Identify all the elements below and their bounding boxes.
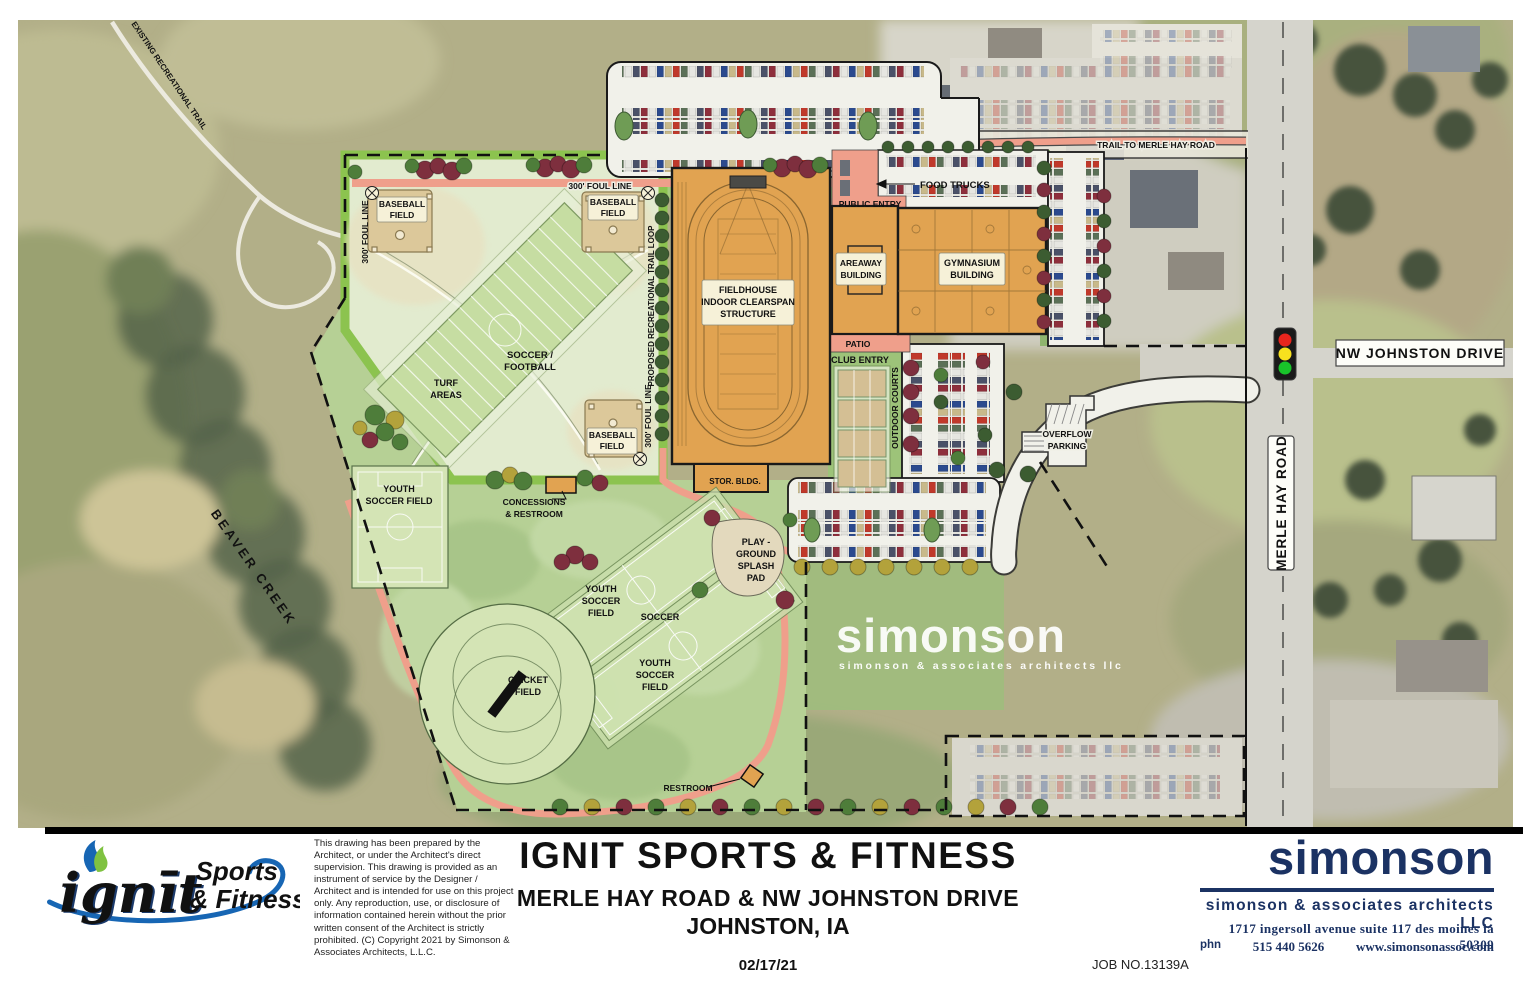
label-baseball-2: FIELD <box>601 208 626 218</box>
label-youth-soccer-low: YOUTH <box>639 658 671 668</box>
label-overflow-parking: OVERFLOW <box>1042 429 1092 439</box>
cricket-field <box>419 604 595 784</box>
watermark-firm: simonson & associates architects llc <box>839 660 1124 672</box>
label-proposed-trail-loop: PROPOSED RECREATIONAL TRAIL LOOP <box>647 225 656 387</box>
merle-hay-road-sign: MERLE HAY ROAD <box>1268 435 1294 571</box>
label-playground: PLAY - <box>742 537 771 547</box>
label-trail-to-merle-hay: TRAIL TO MERLE HAY ROAD <box>1097 140 1215 150</box>
drawing-date: 02/17/21 <box>0 957 1536 974</box>
simonson-contact-line: phn 515 440 5626 www.simonsonassoc.com <box>1200 939 1494 955</box>
label-baseball-2: BASEBALL <box>590 197 636 207</box>
merle-hay-road-pavement <box>1247 20 1313 828</box>
compass-icon <box>366 187 379 200</box>
label-turf-areas: AREAS <box>430 390 462 400</box>
label-playground: PAD <box>747 573 766 583</box>
label-areaway: AREAWAY <box>840 258 883 268</box>
compass-icon <box>642 187 655 200</box>
drawing-sheet: 300' FOUL LINE 300' FOUL LINE 300' FOUL … <box>0 0 1536 994</box>
label-youth-soccer-mid: FIELD <box>588 608 614 618</box>
job-number: JOB NO.13139A <box>1092 957 1189 972</box>
signal-green-light <box>1279 362 1292 375</box>
label-foul-line-bottom: 300' FOUL LINE <box>643 384 653 448</box>
traffic-signal-icon <box>1274 328 1296 380</box>
label-soccer-football: SOCCER / <box>507 350 553 361</box>
watermark-wordmark: simonson <box>836 609 1066 662</box>
label-youth-soccer-mid: YOUTH <box>585 584 617 594</box>
simonson-wordmark: simonson <box>1200 832 1494 884</box>
label-playground: GROUND <box>736 549 776 559</box>
label-concessions: CONCESSIONS <box>503 497 566 507</box>
signal-yellow-light <box>1279 348 1292 361</box>
signal-red-light <box>1279 334 1292 347</box>
label-gymnasium: GYMNASIUM <box>944 258 1000 268</box>
label-outdoor-courts: OUTDOOR COURTS <box>890 367 900 449</box>
label-youth-soccer-nw: YOUTH <box>383 484 415 494</box>
label-baseball-1: BASEBALL <box>379 199 425 209</box>
concessions-building <box>546 477 576 493</box>
website-url: www.simonsonassoc.com <box>1356 939 1494 955</box>
label-youth-soccer-low: SOCCER <box>636 670 675 680</box>
nw-johnston-drive-sign: NW JOHNSTON DRIVE <box>1336 340 1504 366</box>
label-fieldhouse: FIELDHOUSE <box>719 285 777 295</box>
label-cricket: CRICKET <box>508 675 549 685</box>
label-patio: PATIO <box>846 339 871 349</box>
label-playground: SPLASH <box>738 561 775 571</box>
phone-number: 515 440 5626 <box>1253 939 1325 955</box>
label-public-entry: PUBLIC ENTRY <box>839 199 902 209</box>
label-soccer: SOCCER <box>641 612 680 622</box>
compass-icon <box>634 453 647 466</box>
label-storage-building: STOR. BLDG. <box>709 477 760 486</box>
label-cricket: FIELD <box>515 687 541 697</box>
label-baseball-3: BASEBALL <box>589 430 635 440</box>
label-baseball-1: FIELD <box>390 210 415 220</box>
label-turf-areas: TURF <box>434 378 458 388</box>
outdoor-courts <box>834 366 890 492</box>
label-concessions: & RESTROOM <box>505 509 563 519</box>
simonson-rule <box>1200 888 1494 892</box>
label-restroom: RESTROOM <box>663 783 712 793</box>
label-baseball-3: FIELD <box>600 441 625 451</box>
label-youth-soccer-nw: SOCCER FIELD <box>365 496 433 506</box>
label-foul-line-left: 300' FOUL LINE <box>360 200 370 264</box>
label-foul-line-top: 300' FOUL LINE <box>568 181 632 191</box>
label-club-entry: CLUB ENTRY <box>831 355 889 365</box>
nw-johnston-sign-text: NW JOHNSTON DRIVE <box>1336 345 1504 361</box>
label-gymnasium: BUILDING <box>950 270 994 280</box>
label-fieldhouse: STRUCTURE <box>720 309 776 319</box>
phone-label: phn <box>1200 939 1221 955</box>
label-soccer-football: FOOTBALL <box>504 362 556 373</box>
east-parking-lot <box>1048 152 1104 346</box>
label-youth-soccer-mid: SOCCER <box>582 596 621 606</box>
label-youth-soccer-low: FIELD <box>642 682 668 692</box>
label-fieldhouse: INDOOR CLEARSPAN <box>701 297 795 307</box>
merle-hay-sign-text: MERLE HAY ROAD <box>1274 435 1289 571</box>
south-parking-lot <box>788 478 1000 562</box>
label-areaway: BUILDING <box>840 270 881 280</box>
label-food-trucks: FOOD TRUCKS <box>920 180 990 191</box>
label-overflow-parking: PARKING <box>1048 441 1087 451</box>
